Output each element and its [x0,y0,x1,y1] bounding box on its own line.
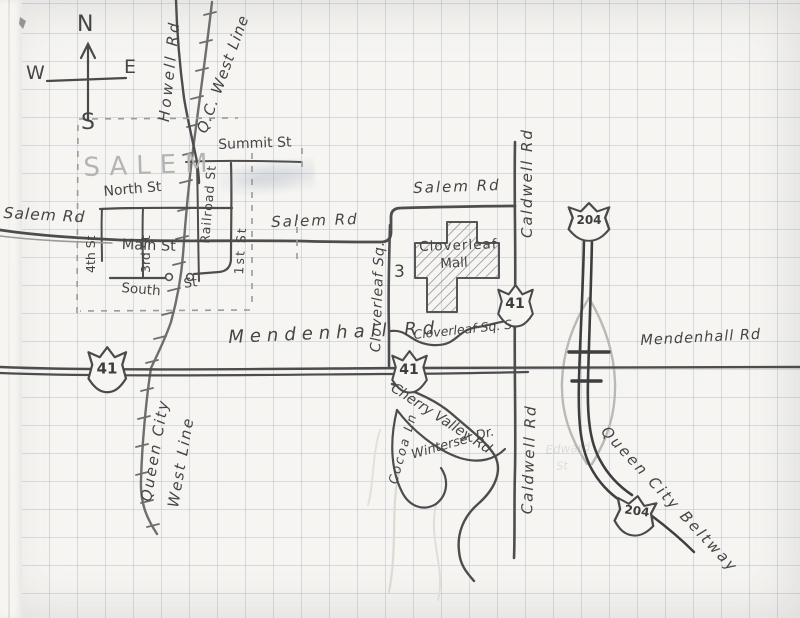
cloverleaf-mall-label-line2: Mall [440,257,468,272]
route-41-number-west: 41 [97,362,118,377]
route-41-number-caldwell: 41 [505,297,524,311]
cloverleaf-mall-label-line1: Cloverleaf [419,238,498,254]
summit-st-label: Summit St [218,135,292,152]
route-41-number-cloverleaf: 41 [399,363,418,377]
fourth-st-label: 4th St [85,235,98,273]
compass-rose [47,44,126,120]
compass-east-label: E [124,58,136,77]
mall-number-label: 3 [394,264,405,281]
route-204-number-north: 204 [576,214,601,226]
hand-drawn-map: N W E S SALEM Howell Rd Q.C. West Line S… [0,0,800,618]
compass-west-label: W [26,64,45,83]
caldwell-rd-upper-label: Caldwell Rd [520,128,535,238]
scan-speck [19,17,26,29]
salem-town-label: SALEM [83,150,217,181]
third-st-label: 3rd St [140,235,153,273]
erased-street-label-line2: St [556,460,568,472]
map-drawing [0,0,800,618]
salem-rd-east-label: Salem Rd [413,178,501,196]
south-st-suffix-label: St [183,276,198,291]
salem-rd-mid-label: Salem Rd [271,212,359,230]
route-204-number-south: 204 [624,503,650,518]
first-st-label: 1st St [233,226,249,275]
mendenhall-rd-path-south [0,372,528,375]
erased-street-label-line1: Edward [545,441,591,456]
compass-north-label: N [77,14,93,36]
compass-ew-line [47,78,126,81]
compass-south-label: S [81,112,95,134]
caldwell-rd-lower-label: Caldwell Rd [520,404,539,514]
south-st-label: South [121,282,161,299]
roads [0,0,800,581]
cloverleaf-sq-path [389,225,390,366]
caldwell-rd-path [514,142,515,558]
